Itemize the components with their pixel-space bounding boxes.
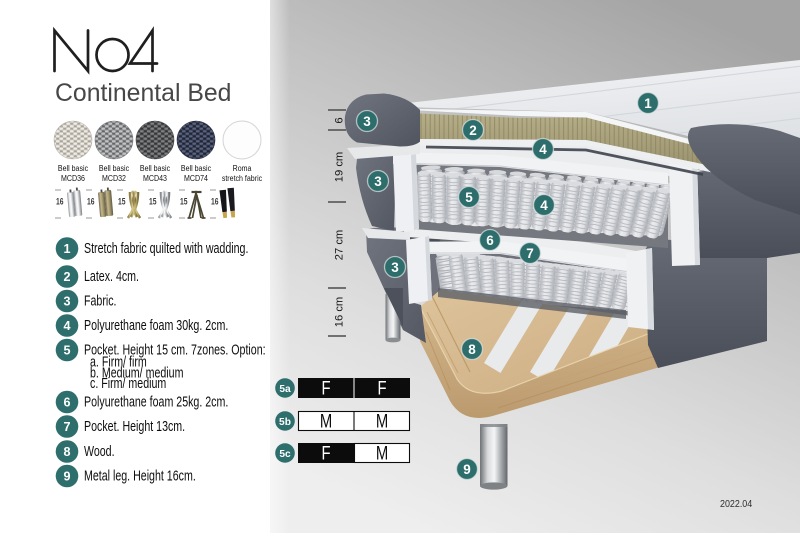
- svg-text:7: 7: [526, 246, 534, 261]
- svg-text:16: 16: [211, 196, 219, 206]
- svg-text:Continental Bed: Continental Bed: [55, 80, 231, 107]
- svg-text:4: 4: [540, 198, 548, 213]
- svg-text:5: 5: [465, 190, 473, 205]
- svg-text:2: 2: [469, 123, 477, 138]
- svg-text:15: 15: [149, 196, 157, 206]
- svg-text:15: 15: [118, 196, 126, 206]
- svg-text:Metal leg. Height 16cm.: Metal leg. Height 16cm.: [84, 468, 196, 484]
- svg-text:8: 8: [63, 445, 70, 459]
- svg-text:8: 8: [468, 342, 476, 357]
- svg-text:Pocket. Height 13cm.: Pocket. Height 13cm.: [84, 419, 185, 435]
- svg-text:M: M: [376, 443, 388, 464]
- svg-text:5b: 5b: [279, 417, 291, 428]
- svg-text:16 cm: 16 cm: [334, 297, 346, 327]
- svg-text:Polyurethane foam 30kg. 2cm.: Polyurethane foam 30kg. 2cm.: [84, 318, 228, 334]
- svg-text:c. Firm/ medium: c. Firm/ medium: [90, 376, 166, 392]
- svg-text:9: 9: [63, 470, 70, 484]
- svg-text:2: 2: [63, 270, 70, 284]
- svg-text:Bell basic: Bell basic: [99, 163, 129, 173]
- svg-text:6: 6: [486, 233, 494, 248]
- svg-text:16: 16: [87, 196, 95, 206]
- svg-text:27 cm: 27 cm: [334, 230, 346, 260]
- svg-text:Stretch fabric quilted with wa: Stretch fabric quilted with wadding.: [84, 241, 248, 257]
- svg-text:6: 6: [334, 117, 346, 123]
- svg-text:4: 4: [63, 319, 70, 333]
- svg-text:MCD36: MCD36: [61, 173, 85, 183]
- svg-text:Wood.: Wood.: [84, 444, 115, 460]
- svg-text:3: 3: [63, 295, 70, 309]
- svg-text:3: 3: [363, 114, 371, 129]
- svg-text:5: 5: [63, 344, 70, 358]
- svg-text:Bell basic: Bell basic: [140, 163, 170, 173]
- svg-text:3: 3: [391, 260, 399, 275]
- svg-text:Roma: Roma: [233, 163, 252, 173]
- svg-text:M: M: [320, 411, 332, 432]
- svg-text:MCD32: MCD32: [102, 173, 126, 183]
- svg-text:MCD74: MCD74: [184, 173, 208, 183]
- svg-text:Polyurethane foam 25kg. 2cm.: Polyurethane foam 25kg. 2cm.: [84, 394, 228, 410]
- svg-text:1: 1: [644, 96, 652, 111]
- svg-text:F: F: [321, 443, 330, 464]
- svg-text:6: 6: [63, 396, 70, 410]
- svg-text:5a: 5a: [279, 384, 291, 395]
- svg-text:9: 9: [463, 462, 471, 477]
- svg-text:M: M: [376, 411, 388, 432]
- svg-text:19 cm: 19 cm: [334, 152, 346, 182]
- svg-text:F: F: [321, 378, 330, 399]
- svg-text:Latex. 4cm.: Latex. 4cm.: [84, 269, 139, 285]
- svg-text:15: 15: [180, 196, 188, 206]
- svg-text:7: 7: [63, 420, 70, 434]
- svg-text:Fabric.: Fabric.: [84, 293, 117, 309]
- svg-text:1: 1: [63, 242, 70, 256]
- svg-text:MCD43: MCD43: [143, 173, 167, 183]
- svg-text:4: 4: [539, 142, 547, 157]
- svg-text:2022.04: 2022.04: [720, 498, 753, 510]
- svg-text:stretch fabric: stretch fabric: [222, 173, 262, 183]
- svg-text:16: 16: [56, 196, 64, 206]
- svg-text:Bell basic: Bell basic: [58, 163, 88, 173]
- svg-text:F: F: [377, 378, 386, 399]
- svg-text:Bell basic: Bell basic: [181, 163, 211, 173]
- svg-text:5c: 5c: [279, 449, 291, 460]
- svg-text:3: 3: [374, 174, 382, 189]
